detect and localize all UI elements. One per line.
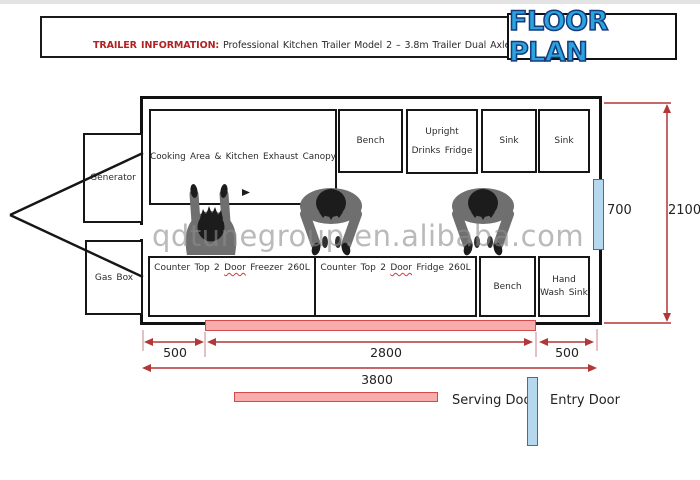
fridge-label: Counter Top 2 Door Fridge 260L	[320, 263, 470, 273]
room-sink-1: Sink	[481, 109, 537, 173]
freezer-label: Counter Top 2 Door Freezer 260L	[154, 263, 310, 273]
room-sink-2: Sink	[538, 109, 590, 173]
trailer-model-description: Professional Kitchen Trailer Model 2 – 3…	[223, 40, 510, 51]
room-gas-box: Gas Box	[85, 240, 143, 315]
trailer-information-text: TRAILER INFORMATION: Professional Kitche…	[93, 40, 510, 51]
scan-edge-artifact	[0, 0, 700, 4]
dimension-middle-section: 2800	[356, 345, 416, 360]
legend-serving-door-swatch	[234, 392, 438, 402]
room-upright-drinks-fridge: Upright Drinks Fridge	[406, 109, 478, 174]
dimension-total-length: 3800	[347, 372, 407, 387]
freezer-door-word: Door	[224, 263, 246, 273]
dimension-trailer-height: 2100	[668, 203, 700, 218]
room-bench-top: Bench	[338, 109, 403, 173]
dimension-right-section: 500	[537, 345, 597, 360]
drawbar-wall-gap	[136, 225, 146, 239]
floor-plan-title-box: FLOOR PLAN	[507, 13, 677, 60]
legend-entry-door-swatch	[527, 377, 538, 446]
hand-wash-line2: Wash Sink	[540, 288, 588, 298]
legend-entry-door-label: Entry Door	[550, 393, 620, 408]
watermark-text: qdtunegroup.en.alibaba.com	[152, 219, 567, 253]
dimension-left-section: 500	[145, 345, 205, 360]
room-counter-freezer: Counter Top 2 Door Freezer 260L	[148, 256, 316, 317]
room-counter-fridge: Counter Top 2 Door Fridge 260L	[314, 256, 477, 317]
legend-serving-door-label: Serving Door	[452, 393, 537, 408]
upright-fridge-line2: Drinks Fridge	[412, 146, 473, 156]
room-bench-bottom: Bench	[479, 256, 536, 317]
trailer-information-label: TRAILER INFORMATION:	[93, 40, 219, 51]
room-hand-wash-sink: Hand Wash Sink	[538, 256, 590, 317]
hand-wash-line1: Hand	[552, 275, 576, 285]
room-generator: Generator	[83, 133, 143, 223]
dimension-door-opening: 700	[607, 203, 632, 218]
entry-door-marker	[593, 179, 604, 250]
upright-fridge-line1: Upright	[425, 127, 458, 137]
fridge-door-word: Door	[390, 263, 412, 273]
floor-plan-page: TRAILER INFORMATION: Professional Kitche…	[0, 0, 700, 480]
serving-door-marker	[205, 320, 536, 331]
page-title: FLOOR PLAN	[509, 6, 675, 68]
